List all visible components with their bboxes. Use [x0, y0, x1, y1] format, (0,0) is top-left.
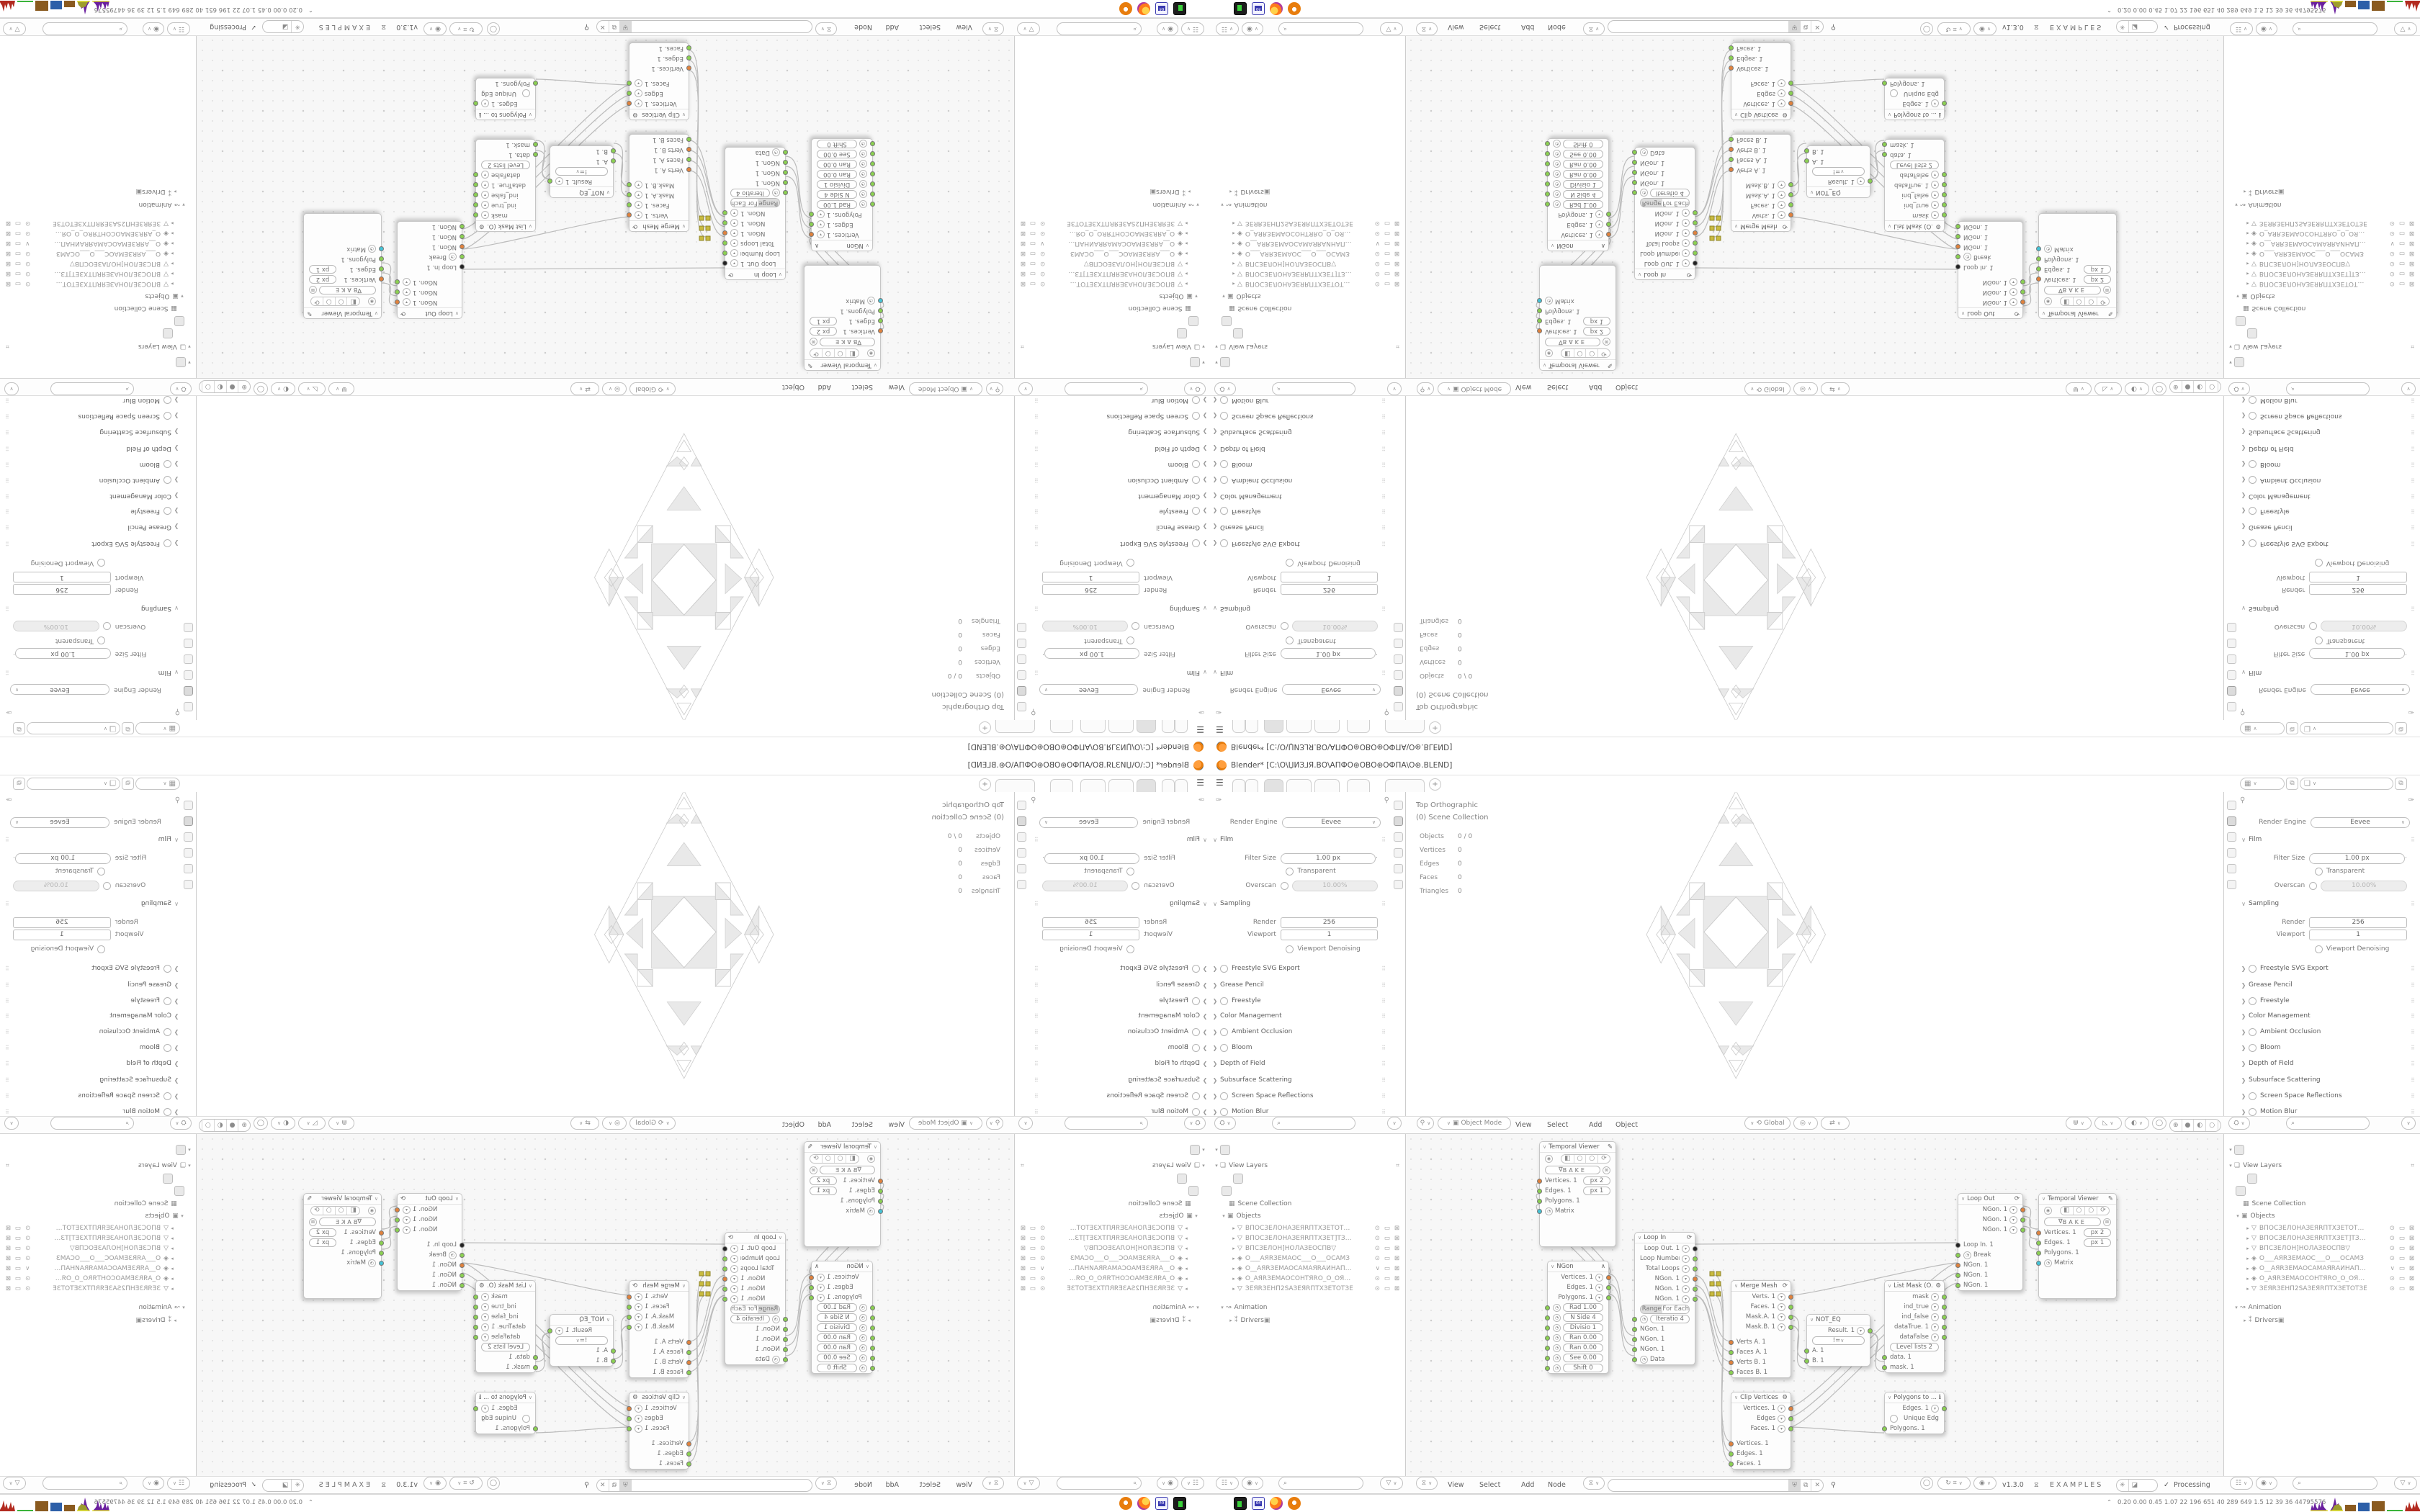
- output-socket[interactable]: [1942, 1406, 1947, 1411]
- output-socket[interactable]: [809, 1275, 814, 1280]
- socket-menu-icon[interactable]: ▾: [2009, 1226, 2017, 1234]
- input-socket[interactable]: [686, 1340, 691, 1345]
- clock-icon[interactable]: ◔: [1553, 171, 1561, 179]
- filter-dropdown[interactable]: ▽∨: [3, 1477, 26, 1490]
- output-socket[interactable]: [2020, 280, 2025, 285]
- view-layer-sub-row[interactable]: [2227, 1174, 2417, 1184]
- objects-row[interactable]: ▾▣Objects: [2227, 291, 2417, 301]
- node-menu-node[interactable]: Node: [854, 23, 872, 31]
- object-row[interactable]: ▸◈О_АЯRЗЕМАОСОНТЯRО_О_ОЯRТН⊙▭⊠: [2227, 228, 2417, 238]
- screen-icon[interactable]: ▭: [2399, 1255, 2405, 1262]
- socket-menu-icon[interactable]: ▾: [1931, 1405, 1939, 1413]
- screen-icon[interactable]: ▭: [2399, 240, 2405, 247]
- clock-icon[interactable]: ◔: [859, 201, 867, 209]
- input-socket[interactable]: [870, 1315, 875, 1320]
- socket-menu-icon[interactable]: ▾: [1931, 100, 1939, 108]
- input-socket[interactable]: [379, 257, 384, 262]
- socket-menu-icon[interactable]: ▾: [1595, 1294, 1603, 1302]
- value-pill[interactable]: Iteratio 4: [1650, 1315, 1690, 1323]
- drivers-row[interactable]: ▸⁑Drivers▣: [2227, 1315, 2417, 1326]
- animation-row[interactable]: ▾↝Animation: [2227, 1302, 2417, 1313]
- node-header[interactable]: ∨Polygons to ...ℹ: [476, 109, 535, 120]
- socket-menu-icon[interactable]: ▾: [1778, 1313, 1785, 1321]
- value-pill[interactable]: Ran 0.00: [1563, 1333, 1603, 1342]
- camera-toggle-icon[interactable]: ⊠: [6, 1265, 11, 1272]
- eye-icon[interactable]: ⊙: [25, 230, 30, 237]
- input-socket[interactable]: [686, 148, 691, 153]
- input-socket[interactable]: [611, 159, 616, 164]
- socket-menu-icon[interactable]: ▾: [730, 1275, 738, 1283]
- arrow-icon[interactable]: ▸: [169, 220, 176, 226]
- output-socket[interactable]: [1868, 1328, 1873, 1333]
- collapse-icon[interactable]: ∨: [1734, 223, 1738, 229]
- socket-menu-icon[interactable]: ▾: [1931, 1323, 1939, 1331]
- clock-icon[interactable]: ◔: [1963, 1251, 1971, 1259]
- input-socket[interactable]: [1537, 1189, 1542, 1194]
- collapse-icon[interactable]: ∨: [529, 1395, 532, 1400]
- socket-menu-icon[interactable]: ▾: [1778, 1303, 1785, 1311]
- socket-menu-icon[interactable]: ▾: [1778, 1425, 1785, 1433]
- object-row[interactable]: ▸▽ВПОСЗЕЛОНАЗЕЯRПТХЗЕТ]ТЗЕХ⊙▭⊠: [2227, 1233, 2417, 1243]
- socket-menu-icon[interactable]: ▾: [730, 250, 738, 258]
- input-socket[interactable]: [1804, 159, 1809, 164]
- input-socket[interactable]: [1545, 1366, 1550, 1371]
- clock-icon[interactable]: ◔: [368, 246, 376, 253]
- collapse-icon[interactable]: ∨: [1961, 1196, 1965, 1202]
- input-socket[interactable]: [870, 162, 875, 167]
- firefox-app-icon[interactable]: [1270, 2, 1283, 15]
- camera-toggle-icon[interactable]: ⊠: [6, 280, 11, 287]
- input-socket[interactable]: [2036, 247, 2041, 252]
- node[interactable]: ∨NGon∧Vertices. 1▾Edges. 1▾Polygons. 1▾◔…: [811, 138, 873, 251]
- socket-menu-icon[interactable]: ▾: [1778, 100, 1785, 108]
- view-layers-row[interactable]: ▾❏View Layers⌗: [2227, 1161, 2417, 1171]
- output-socket[interactable]: [627, 1315, 632, 1320]
- socket-menu-icon[interactable]: ▾: [1857, 1327, 1865, 1335]
- clock-icon[interactable]: ◔: [1545, 1207, 1553, 1215]
- collapse-icon[interactable]: ∨: [1734, 1395, 1738, 1400]
- value-pill[interactable]: px 2: [1583, 327, 1610, 336]
- camera-icon[interactable]: ⌗: [2411, 1162, 2414, 1169]
- eye-icon[interactable]: ⊙: [25, 270, 30, 277]
- output-socket[interactable]: [2020, 1207, 2025, 1212]
- input-socket[interactable]: [686, 1350, 691, 1355]
- camera-toggle-icon[interactable]: ⊠: [2409, 1285, 2414, 1292]
- display-toggle-icon[interactable]: ○: [834, 350, 846, 358]
- eye-icon[interactable]: ⊙: [25, 1245, 30, 1252]
- arrow-icon[interactable]: ▸: [2244, 271, 2251, 276]
- arrow-icon[interactable]: ▾: [179, 293, 186, 299]
- output-socket[interactable]: [1788, 1416, 1793, 1421]
- arrow-icon[interactable]: ▸: [169, 261, 176, 266]
- socket-menu-icon[interactable]: ▾: [2009, 1206, 2017, 1214]
- input-socket[interactable]: [783, 1317, 788, 1322]
- output-socket[interactable]: [627, 1426, 632, 1431]
- input-socket[interactable]: [1545, 1326, 1550, 1331]
- socket-menu-icon[interactable]: ▾: [1778, 1323, 1785, 1331]
- socket-menu-icon[interactable]: ▾: [481, 1333, 489, 1341]
- objects-row[interactable]: ▾▣Objects: [3, 291, 193, 301]
- socket-menu-icon[interactable]: ▾: [817, 1284, 825, 1292]
- value-pill[interactable]: N Side 4: [817, 1313, 857, 1322]
- clock-icon[interactable]: ◔: [859, 140, 867, 148]
- node[interactable]: ∨Temporal Viewer✎◉◧○○⟳∇BAKE⊠Vertices. 1p…: [2038, 1193, 2117, 1299]
- clock-icon[interactable]: ◔: [859, 150, 867, 158]
- output-socket[interactable]: [1942, 193, 1947, 198]
- socket-menu-icon[interactable]: ▾: [1931, 1333, 1939, 1341]
- output-socket[interactable]: [473, 193, 478, 198]
- socket-menu-icon[interactable]: ▾: [481, 1405, 489, 1413]
- collapse-chevron-icon[interactable]: ⌃: [308, 6, 313, 13]
- input-socket[interactable]: [533, 1355, 538, 1360]
- output-socket[interactable]: [1693, 1297, 1698, 1302]
- eye-icon[interactable]: ∨: [25, 240, 30, 247]
- value-pill[interactable]: Level lists 2: [481, 161, 530, 169]
- output-socket[interactable]: [1693, 261, 1698, 266]
- clock-icon[interactable]: ◔: [1553, 1364, 1561, 1372]
- snap-node-group[interactable]: ↻ ⌗∨: [1937, 22, 1971, 35]
- camera-toggle-icon[interactable]: ⊠: [6, 270, 11, 277]
- node[interactable]: ∨Polygons to ...ℹEdges. 1▾Unique EdgesPo…: [475, 78, 536, 120]
- input-socket[interactable]: [533, 143, 538, 148]
- object-row[interactable]: ▸◈О___АЯRЗЕМАОС___О___ОСАМЗ⊙▭⊠: [2227, 248, 2417, 258]
- output-socket[interactable]: [547, 1328, 552, 1333]
- arrow-icon[interactable]: ▾: [2234, 1213, 2241, 1219]
- node[interactable]: ∨Loop In⟳Loop Out. 1▾Loop Number▾Total L…: [1634, 1232, 1695, 1365]
- object-row[interactable]: ▸▽ЗЕЯRЗЕНП2SАЗЕЯRПТХЗЕТОТЗЕ⊙▭⊠: [2227, 218, 2417, 228]
- socket-menu-icon[interactable]: ▾: [817, 211, 825, 219]
- node[interactable]: ∨Temporal Viewer✎◉◧○○⟳∇BAKE⊠Vertices. 1p…: [303, 1193, 382, 1299]
- camera-toggle-icon[interactable]: ⊠: [6, 1245, 11, 1252]
- view-layers-row[interactable]: ▾❏View Layers⌗: [3, 341, 193, 351]
- input-socket[interactable]: [611, 149, 616, 154]
- socket-menu-icon[interactable]: ▾: [635, 212, 642, 220]
- socket-menu-icon[interactable]: ▾: [1595, 1274, 1603, 1282]
- input-socket[interactable]: [870, 1366, 875, 1371]
- arrow-icon[interactable]: ▸: [2244, 1246, 2251, 1251]
- input-socket[interactable]: [1537, 1209, 1542, 1214]
- clock-icon[interactable]: ◔: [2044, 246, 2052, 253]
- object-row[interactable]: ▸▽ВПОСЗЕЛОНАЗЕЯRПТХЗЕТ]ТЗЕХ⊙▭⊠: [2227, 269, 2417, 279]
- input-socket[interactable]: [1632, 1357, 1637, 1362]
- node-header[interactable]: ∨List Mask (O...⚙: [1885, 220, 1944, 231]
- output-socket[interactable]: [627, 193, 632, 198]
- socket-menu-icon[interactable]: ▾: [403, 1226, 411, 1234]
- display-toggle-icon[interactable]: ⟳: [810, 1155, 822, 1163]
- node[interactable]: ∨Temporal Viewer✎◉◧○○⟳∇BAKE⊠Vertices. 1p…: [804, 1141, 881, 1247]
- frame-icon[interactable]: ◪: [279, 21, 292, 32]
- arrow-icon[interactable]: ▸: [169, 1246, 176, 1251]
- camera-icon[interactable]: ⌗: [2411, 343, 2414, 350]
- copy-button[interactable]: ⧉: [609, 21, 619, 32]
- input-socket[interactable]: [1545, 1336, 1550, 1341]
- input-socket[interactable]: [870, 172, 875, 177]
- input-socket[interactable]: [1729, 1340, 1734, 1345]
- output-socket[interactable]: [1693, 241, 1698, 246]
- input-socket[interactable]: [1882, 1426, 1887, 1431]
- copy-button[interactable]: ⧉: [1801, 1480, 1811, 1491]
- node-header[interactable]: ∨Loop Out⟳: [398, 1194, 462, 1205]
- node-menu-select[interactable]: Select: [1479, 23, 1500, 31]
- socket-menu-icon[interactable]: ▾: [730, 1255, 738, 1263]
- input-socket[interactable]: [686, 168, 691, 173]
- input-socket[interactable]: [1537, 329, 1542, 334]
- arrow-icon[interactable]: ▸: [2244, 1286, 2251, 1292]
- clock-icon[interactable]: ◔: [867, 1207, 875, 1215]
- object-row[interactable]: ▸◈О_АЯRЗЕМАОСОНТЯRО_О_ОЯRТН⊙▭⊠: [3, 228, 193, 238]
- input-socket[interactable]: [1537, 309, 1542, 314]
- socket-menu-icon[interactable]: ▾: [1595, 231, 1603, 239]
- value-pill[interactable]: Ran 0.00: [817, 1333, 857, 1342]
- clock-icon[interactable]: ◔: [1640, 149, 1648, 157]
- socket-menu-icon[interactable]: ▾: [730, 240, 738, 248]
- eye-icon[interactable]: ⊙: [2390, 270, 2395, 277]
- filter-owner-dropdown[interactable]: ◉∨: [2256, 1477, 2277, 1490]
- node[interactable]: ∨Clip Vertices⚙Vertices. 1▾Edges▾Faces. …: [629, 1392, 689, 1470]
- socket-menu-icon[interactable]: ▾: [1682, 1275, 1690, 1283]
- node-menu-select[interactable]: Select: [920, 1481, 941, 1489]
- editor-circle-button[interactable]: ◯: [487, 22, 500, 35]
- node-header[interactable]: ∨Clip Vertices⚙: [629, 1392, 689, 1403]
- collapse-icon[interactable]: ∨: [529, 223, 532, 229]
- input-socket[interactable]: [1632, 1347, 1637, 1352]
- view-layer-sub-row[interactable]: [3, 328, 193, 338]
- output-socket[interactable]: [722, 1266, 727, 1272]
- blender-app-icon[interactable]: [1119, 1497, 1132, 1510]
- output-socket[interactable]: [722, 1256, 727, 1261]
- socket-menu-icon[interactable]: ▾: [481, 1323, 489, 1331]
- socket-menu-icon[interactable]: ▾: [635, 1303, 642, 1311]
- value-pill[interactable]: Level lists 2: [1890, 1343, 1939, 1351]
- clock-icon[interactable]: ◔: [1553, 161, 1561, 168]
- filter-owner-dropdown[interactable]: ◉∨: [1157, 22, 1178, 35]
- value-pill[interactable]: Level lists 2: [1890, 161, 1939, 169]
- output-socket[interactable]: [1942, 213, 1947, 218]
- input-socket[interactable]: [533, 153, 538, 158]
- node[interactable]: ∨Loop Out⟳NGon. 1▾NGon. 1▾NGon. 1▾Loop I…: [1958, 1193, 2023, 1291]
- clock-icon[interactable]: ◔: [1963, 253, 1971, 261]
- clock-icon[interactable]: ◔: [1553, 140, 1561, 148]
- input-socket[interactable]: [1955, 265, 1960, 270]
- operator-dropdown[interactable]: !=∨: [1812, 1336, 1865, 1345]
- eye-icon[interactable]: ◉: [1545, 350, 1553, 358]
- socket-menu-icon[interactable]: ▾: [1682, 1265, 1690, 1273]
- tree-name-field[interactable]: ⛨⧉✕: [596, 1479, 812, 1492]
- node-checkbox[interactable]: [1890, 90, 1898, 98]
- node[interactable]: ∨Polygons to ...ℹEdges. 1▾Unique EdgesPo…: [475, 1392, 536, 1434]
- scatter-icon[interactable]: ✳: [2117, 1480, 2129, 1491]
- value-pill[interactable]: px 2: [2084, 1228, 2111, 1237]
- output-socket[interactable]: [627, 1416, 632, 1421]
- clock-icon[interactable]: ◔: [1553, 1354, 1561, 1362]
- value-pill[interactable]: See 0.00: [817, 150, 857, 158]
- terminal-app-icon[interactable]: [1173, 2, 1186, 15]
- firefox-app-icon[interactable]: [1137, 2, 1150, 15]
- socket-menu-icon[interactable]: ▾: [1931, 1303, 1939, 1311]
- overlay-dropdown[interactable]: ◉∨: [423, 22, 447, 35]
- output-socket[interactable]: [627, 203, 632, 208]
- output-socket[interactable]: [473, 173, 478, 178]
- terminal-app-icon[interactable]: [1234, 1497, 1247, 1510]
- socket-menu-icon[interactable]: ▾: [481, 192, 489, 199]
- input-socket[interactable]: [783, 191, 788, 196]
- node-header[interactable]: ∨Loop In⟳: [725, 269, 785, 279]
- output-socket[interactable]: [722, 231, 727, 236]
- frame-icon[interactable]: ◪: [2129, 21, 2141, 32]
- node-header[interactable]: ∨Polygons to ...ℹ: [1885, 1392, 1944, 1403]
- socket-menu-icon[interactable]: ▾: [1931, 181, 1939, 189]
- input-socket[interactable]: [1729, 46, 1734, 51]
- output-socket[interactable]: [809, 212, 814, 217]
- arrow-icon[interactable]: ▸: [2244, 281, 2251, 287]
- output-socket[interactable]: [1693, 251, 1698, 256]
- clock-icon[interactable]: ◔: [859, 1324, 867, 1332]
- screen-icon[interactable]: ▭: [15, 1245, 21, 1252]
- socket-menu-icon[interactable]: ▾: [635, 80, 642, 88]
- fake-user-button[interactable]: ⛨: [619, 1480, 631, 1491]
- save-app-icon[interactable]: 64: [1252, 2, 1265, 15]
- socket-menu-icon[interactable]: ▾: [481, 171, 489, 179]
- screen-icon[interactable]: ▭: [2399, 1275, 2405, 1282]
- eye-icon[interactable]: ⊙: [2390, 280, 2395, 287]
- output-socket[interactable]: [1693, 1246, 1698, 1251]
- fake-user-button[interactable]: ⛨: [619, 21, 631, 32]
- clock-icon[interactable]: ◔: [859, 1314, 867, 1322]
- socket-menu-icon[interactable]: ▾: [1778, 1415, 1785, 1423]
- input-socket[interactable]: [611, 1349, 616, 1354]
- input-socket[interactable]: [870, 1326, 875, 1331]
- search-input[interactable]: ⌕: [42, 22, 127, 35]
- clock-icon[interactable]: ◔: [1553, 1344, 1561, 1352]
- eye-icon[interactable]: ⊙: [2390, 1245, 2395, 1252]
- socket-menu-icon[interactable]: ▾: [730, 1265, 738, 1273]
- socket-menu-icon[interactable]: ▾: [1778, 181, 1785, 189]
- node-header[interactable]: ∨NGon∧: [812, 240, 872, 251]
- search-input[interactable]: ⌕: [2293, 1477, 2378, 1490]
- input-socket[interactable]: [783, 1337, 788, 1342]
- node-header[interactable]: ∨Loop In⟳: [1635, 1233, 1695, 1243]
- node-header[interactable]: ∨Merge Mesh⟳: [629, 1281, 689, 1292]
- object-row[interactable]: ▸▽ЗЕЯRЗЕНП2SАЗЕЯRПТХЗЕТОТЗЕ⊙▭⊠: [3, 1284, 193, 1294]
- value-pill[interactable]: Ran 0.00: [1563, 170, 1603, 179]
- node-menu-add[interactable]: Add: [1521, 1481, 1534, 1489]
- collapse-icon[interactable]: ∨: [1961, 310, 1965, 316]
- socket-menu-icon[interactable]: ▾: [1682, 1245, 1690, 1253]
- object-row[interactable]: ▸◈О___АЯRЗЕМАОС___О___ОСАМЗ⊙▭⊠: [3, 248, 193, 258]
- arrow-icon[interactable]: ▸: [169, 240, 176, 246]
- input-socket[interactable]: [1882, 1355, 1887, 1360]
- output-socket[interactable]: [722, 261, 727, 266]
- socket-menu-icon[interactable]: ▾: [817, 221, 825, 229]
- output-socket[interactable]: [1788, 213, 1793, 218]
- display-toggle-icon[interactable]: ○: [2074, 1207, 2086, 1215]
- search-input[interactable]: ⌕: [2293, 22, 2378, 35]
- socket-menu-icon[interactable]: ▾: [1595, 221, 1603, 229]
- output-socket[interactable]: [1942, 102, 1947, 107]
- drivers-row[interactable]: ▸⁑Drivers▣: [3, 1315, 193, 1326]
- output-socket[interactable]: [395, 300, 400, 305]
- arrow-icon[interactable]: ▸: [169, 271, 176, 276]
- socket-menu-icon[interactable]: ▾: [1931, 212, 1939, 220]
- editor-circle-button[interactable]: ◯: [1920, 22, 1933, 35]
- fake-user-button[interactable]: ⛨: [1789, 21, 1801, 32]
- eye-icon[interactable]: ⊙: [25, 220, 30, 227]
- input-socket[interactable]: [870, 1305, 875, 1310]
- arrow-icon[interactable]: ▸: [2241, 1318, 2249, 1323]
- filter-icon[interactable]: [176, 357, 186, 367]
- input-socket[interactable]: [878, 299, 883, 304]
- node-menu-view[interactable]: View: [1448, 1481, 1464, 1489]
- value-pill[interactable]: px 1: [810, 1187, 837, 1195]
- clock-icon[interactable]: ◔: [449, 1251, 457, 1259]
- bake-button[interactable]: ∇BAKE: [319, 286, 376, 294]
- socket-menu-icon[interactable]: ▾: [481, 1293, 489, 1301]
- snap-node-group[interactable]: ↻ ⌗∨: [449, 1477, 483, 1490]
- globe-row[interactable]: [2227, 316, 2417, 326]
- arrow-icon[interactable]: ▸: [169, 251, 176, 256]
- view-layer-sub-row[interactable]: [3, 1174, 193, 1184]
- collapse-icon[interactable]: ∨: [375, 1196, 378, 1202]
- socket-menu-icon[interactable]: ▾: [481, 1313, 489, 1321]
- display-toggle-icon[interactable]: ◧: [1561, 1155, 1574, 1163]
- input-socket[interactable]: [1545, 142, 1550, 147]
- input-socket[interactable]: [1729, 1441, 1734, 1446]
- socket-menu-icon[interactable]: ▾: [1682, 230, 1690, 238]
- output-socket[interactable]: [395, 290, 400, 295]
- camera-toggle-icon[interactable]: ⊠: [2409, 230, 2414, 237]
- tree-name-input[interactable]: [1608, 1480, 1789, 1491]
- screen-icon[interactable]: ▭: [15, 1265, 21, 1272]
- firefox-app-icon[interactable]: [1137, 1497, 1150, 1510]
- socket-menu-icon[interactable]: ▾: [817, 1274, 825, 1282]
- toggle-option-a[interactable]: Range: [1641, 1305, 1662, 1313]
- screen-icon[interactable]: ▭: [2399, 1225, 2405, 1232]
- camera-toggle-icon[interactable]: ⊠: [2409, 1245, 2414, 1252]
- input-socket[interactable]: [686, 138, 691, 143]
- node[interactable]: ∨Polygons to ...ℹEdges. 1▾Unique EdgesPo…: [1884, 78, 1945, 120]
- input-socket[interactable]: [870, 192, 875, 197]
- value-pill[interactable]: Ran 0.00: [1563, 160, 1603, 168]
- input-socket[interactable]: [1632, 150, 1637, 156]
- socket-menu-icon[interactable]: ▾: [1931, 1293, 1939, 1301]
- output-socket[interactable]: [473, 1315, 478, 1320]
- tree-type-dropdown[interactable]: ⧖∨: [982, 22, 1004, 35]
- arrow-icon[interactable]: ▸: [2244, 1225, 2251, 1231]
- input-socket[interactable]: [783, 1347, 788, 1352]
- input-socket[interactable]: [686, 158, 691, 163]
- node-menu-view[interactable]: View: [956, 1481, 972, 1489]
- node[interactable]: ∨Temporal Viewer✎◉◧○○⟳∇BAKE⊠Vertices. 1p…: [1539, 1141, 1616, 1247]
- input-socket[interactable]: [686, 1462, 691, 1467]
- input-socket[interactable]: [1729, 148, 1734, 153]
- clock-icon[interactable]: ◔: [859, 1344, 867, 1352]
- socket-menu-icon[interactable]: ▾: [1778, 202, 1785, 210]
- screen-icon[interactable]: ▭: [2399, 230, 2405, 237]
- animation-row[interactable]: ▾↝Animation: [3, 199, 193, 210]
- arrow-icon[interactable]: ▸: [2244, 240, 2251, 246]
- display-toggle-icon[interactable]: ◧: [846, 1155, 859, 1163]
- eye-icon[interactable]: ⊙: [2390, 1275, 2395, 1282]
- toggle-option-b[interactable]: For Each: [1662, 1305, 1689, 1313]
- output-socket[interactable]: [627, 81, 632, 86]
- output-socket[interactable]: [1693, 211, 1698, 216]
- object-row[interactable]: ▸◈О___АЯRЗЕМАОС___О___ОСАМЗ⊙▭⊠: [3, 1254, 193, 1264]
- eye-icon[interactable]: ◉: [867, 350, 875, 358]
- node-menu-add[interactable]: Add: [886, 1481, 899, 1489]
- input-socket[interactable]: [379, 267, 384, 272]
- filter-icon[interactable]: [2234, 357, 2244, 367]
- camera-toggle-icon[interactable]: ⊠: [6, 220, 11, 227]
